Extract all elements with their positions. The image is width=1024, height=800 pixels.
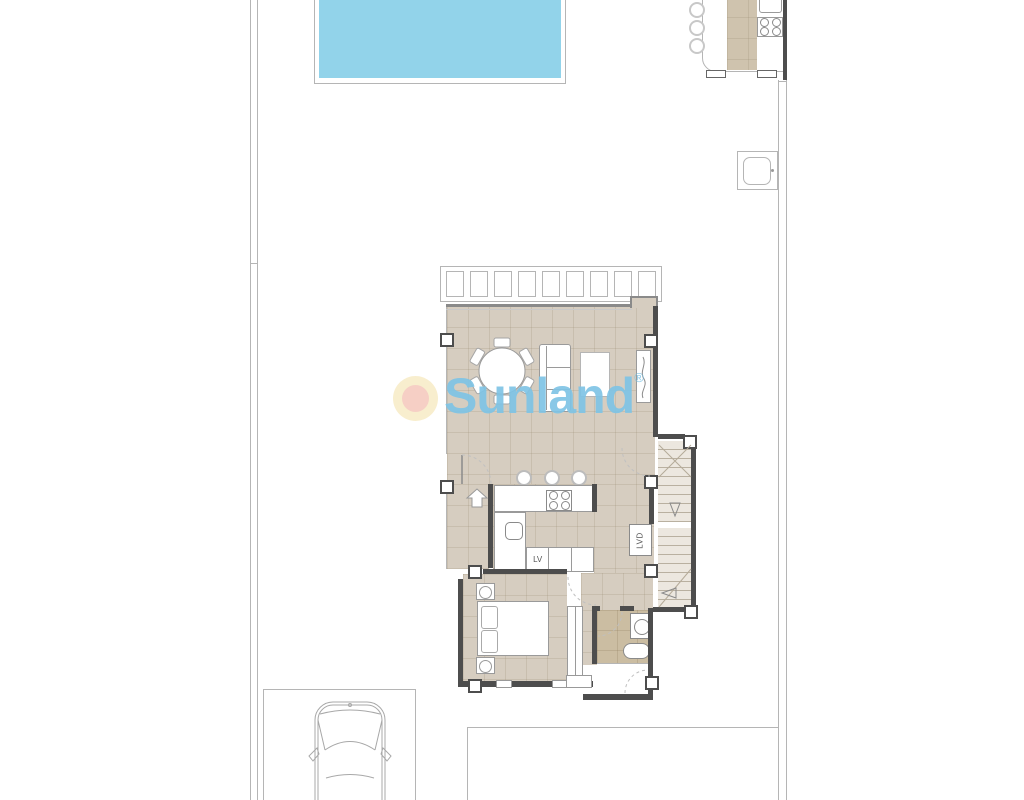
burner-icon	[549, 501, 558, 510]
nightstand	[476, 583, 495, 600]
wall-hall-stub	[592, 484, 597, 512]
utility-unit-inner	[743, 157, 771, 185]
column	[644, 564, 658, 578]
burner-icon	[772, 27, 781, 36]
pergola-slat	[470, 271, 488, 297]
wall-bedroom-bottom	[512, 681, 552, 687]
bar-stool	[689, 20, 705, 36]
column	[468, 565, 482, 579]
wall-bath-top	[620, 606, 634, 611]
cooktop	[546, 490, 572, 511]
patio-edge-top	[467, 727, 779, 728]
parking-edge-top	[263, 689, 416, 690]
wall-stair-right	[691, 441, 696, 613]
cabinet	[572, 548, 593, 571]
dishwasher: LV	[527, 548, 549, 571]
wall-kitchen-left	[488, 484, 493, 568]
pergola-slat	[494, 271, 512, 297]
car	[309, 702, 391, 800]
column	[645, 676, 659, 690]
bar-stool	[689, 38, 705, 54]
outdoor-kitchen-wall	[783, 0, 787, 80]
pergola-slats	[446, 271, 656, 297]
column	[440, 333, 454, 347]
wardrobe-divider	[575, 607, 576, 683]
parking-edge-right	[415, 689, 416, 800]
lamp-icon	[479, 586, 492, 599]
porch-step	[566, 675, 592, 688]
patio-edge-left	[467, 727, 468, 800]
car-windshield	[325, 742, 375, 751]
pergola-slat	[566, 271, 584, 297]
toilet	[623, 643, 650, 659]
wall-bedroom-top	[483, 569, 567, 574]
kitchen-counter-top	[494, 485, 594, 512]
car-hood-line	[320, 710, 380, 714]
boundary-right-outer	[786, 80, 787, 800]
burner-icon	[549, 491, 558, 500]
column	[468, 679, 482, 693]
outdoor-counter-foot-right	[757, 70, 777, 78]
bathroom-threshold	[597, 663, 648, 664]
stairs-lower-flight	[658, 528, 692, 608]
terrace-edge	[446, 485, 447, 569]
burner-icon	[760, 18, 769, 27]
cabinet	[549, 548, 571, 571]
burner-icon	[760, 27, 769, 36]
hallway-lower-floor	[581, 573, 653, 610]
boundary-left-inner	[257, 0, 258, 800]
sun-inner-icon	[402, 385, 429, 412]
wall-living-right	[653, 306, 658, 437]
brand-wordmark: Sunland	[444, 374, 634, 418]
bedroom-window	[496, 680, 512, 688]
pool-water	[319, 0, 561, 78]
pergola-slat	[590, 271, 608, 297]
car-antenna	[349, 704, 352, 707]
wall-bath-left	[592, 606, 597, 664]
kitchen-stool	[571, 470, 587, 486]
kitchen-sink	[505, 522, 523, 540]
wall-bath-right	[648, 608, 653, 664]
burner-icon	[561, 491, 570, 500]
car-roof-line	[326, 775, 374, 779]
pergola-slat	[638, 271, 656, 297]
sun-icon	[393, 376, 438, 421]
boundary-left-outer	[250, 0, 251, 800]
wall-porch-bottom	[583, 694, 653, 700]
nightstand	[476, 657, 495, 674]
column	[684, 605, 698, 619]
column	[440, 480, 454, 494]
living-glass-wall-track	[446, 309, 632, 310]
lamp-icon	[479, 660, 492, 673]
kitchen-stool	[544, 470, 560, 486]
wardrobe	[567, 606, 583, 684]
outdoor-counter-strip	[727, 0, 757, 70]
entry-floor	[447, 484, 489, 569]
kitchen-stool	[516, 470, 532, 486]
pergola-slat	[542, 271, 560, 297]
boundary-right-tick	[778, 81, 787, 82]
burner-icon	[772, 18, 781, 27]
floorplan-canvas: LV LVD	[0, 0, 1024, 800]
column	[644, 475, 658, 489]
utility-unit-knob	[771, 169, 774, 172]
stairs-upper-flight	[658, 441, 692, 522]
car-mirrors	[309, 748, 391, 761]
pergola-slat	[518, 271, 536, 297]
pillow	[481, 630, 498, 653]
outdoor-sink	[759, 0, 782, 13]
pergola-slat	[614, 271, 632, 297]
pergola-slat	[446, 271, 464, 297]
watermark-logo: Sunland ®	[393, 374, 644, 421]
column	[683, 435, 697, 449]
boundary-right-inner	[778, 80, 779, 800]
burner-icon	[561, 501, 570, 510]
laundry-closet: LVD	[629, 524, 652, 556]
parking-edge-left	[263, 689, 264, 800]
column	[644, 334, 658, 348]
laundry-label: LVD	[636, 532, 645, 548]
registered-mark: ®	[634, 370, 644, 385]
boundary-left-tick	[250, 263, 258, 264]
outdoor-counter-foot-left	[706, 70, 726, 78]
pillow	[481, 606, 498, 629]
bar-stool	[689, 2, 705, 18]
living-glass-wall	[446, 304, 632, 307]
car-a-pillars	[318, 720, 382, 750]
wall-stair-top	[658, 434, 685, 439]
kitchen-counter-left	[494, 512, 526, 572]
outdoor-cooktop	[757, 17, 783, 37]
wall-bedroom-left	[458, 579, 463, 682]
dishwasher-label: LV	[533, 555, 542, 564]
bed	[477, 601, 549, 656]
utility-unit	[737, 151, 778, 190]
